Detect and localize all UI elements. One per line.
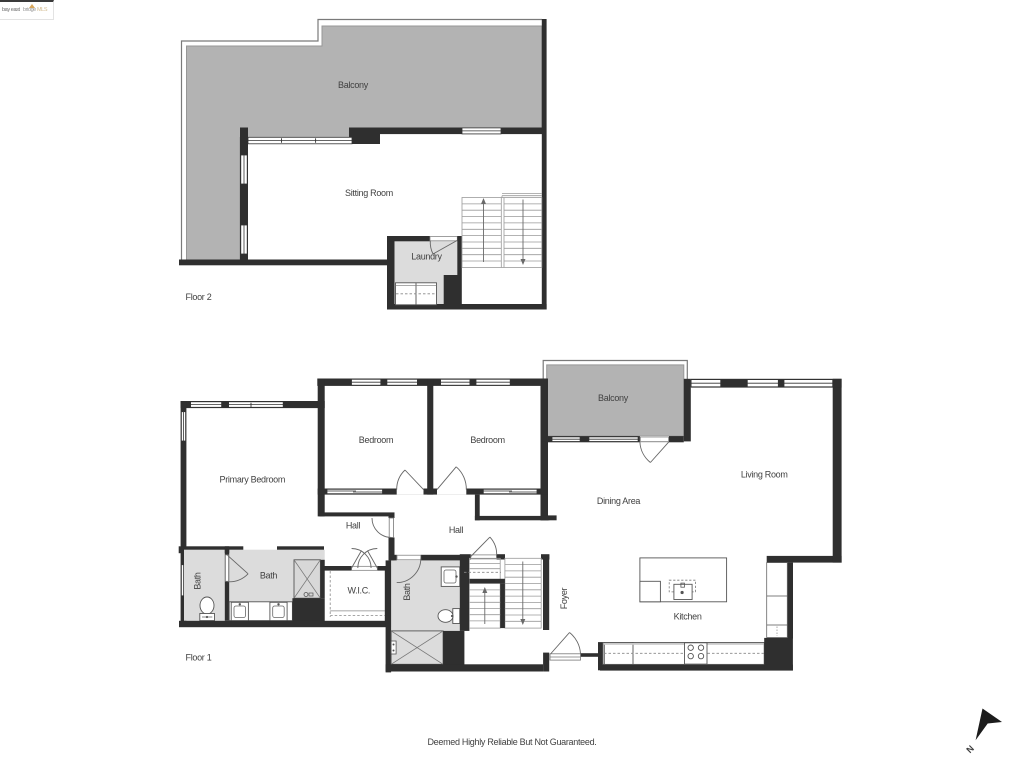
svg-text:Foyer: Foyer bbox=[559, 587, 569, 609]
svg-text:Bath: Bath bbox=[260, 571, 278, 581]
svg-text:Deemed Highly Reliable But Not: Deemed Highly Reliable But Not Guarantee… bbox=[427, 737, 596, 747]
svg-text:Sitting Room: Sitting Room bbox=[345, 188, 393, 198]
svg-text:Balcony: Balcony bbox=[598, 393, 629, 403]
svg-text:Floor 1: Floor 1 bbox=[186, 653, 212, 663]
svg-text:Bedroom: Bedroom bbox=[359, 435, 393, 445]
svg-text:Bath: Bath bbox=[193, 572, 203, 590]
svg-text:Balcony: Balcony bbox=[338, 80, 369, 90]
svg-text:Bedroom: Bedroom bbox=[470, 435, 504, 445]
svg-text:Floor 2: Floor 2 bbox=[186, 292, 212, 302]
svg-text:Bath: Bath bbox=[402, 583, 412, 601]
svg-text:Kitchen: Kitchen bbox=[674, 612, 702, 622]
svg-text:W.I.C.: W.I.C. bbox=[347, 586, 370, 596]
svg-text:Living Room: Living Room bbox=[741, 469, 788, 479]
svg-text:Primary Bedroom: Primary Bedroom bbox=[220, 474, 286, 484]
svg-text:Dining Area: Dining Area bbox=[597, 496, 641, 506]
svg-text:Laundry: Laundry bbox=[411, 252, 442, 262]
svg-text:N: N bbox=[964, 744, 975, 755]
svg-text:Hall: Hall bbox=[346, 521, 361, 531]
svg-text:Hall: Hall bbox=[449, 525, 464, 535]
